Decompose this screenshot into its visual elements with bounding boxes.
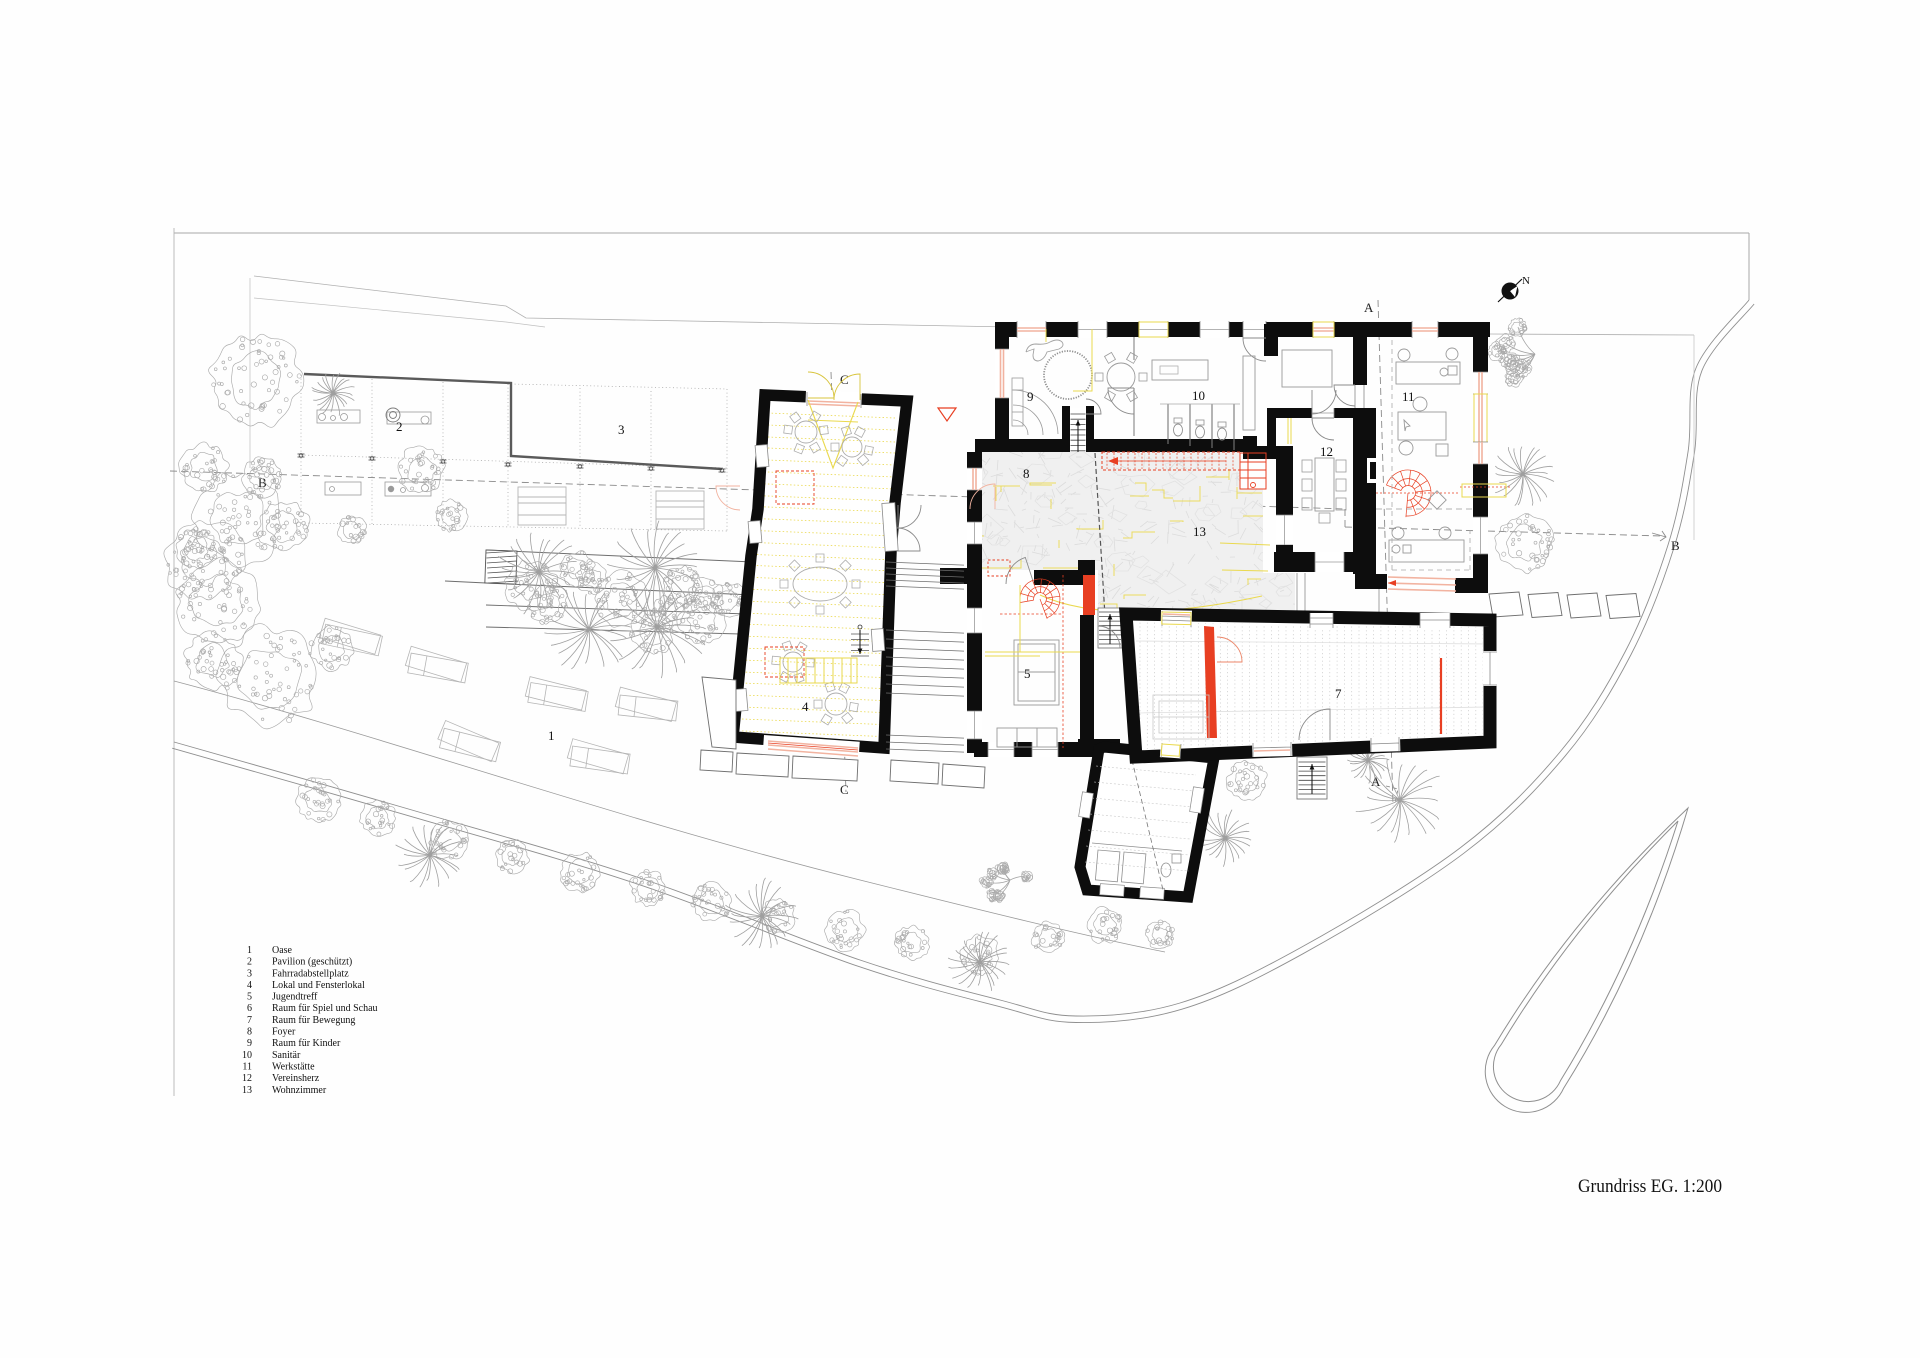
svg-text:Sanitär: Sanitär [272,1050,301,1061]
svg-text:5: 5 [1024,666,1031,681]
svg-text:10: 10 [242,1050,252,1061]
svg-text:1: 1 [548,728,555,743]
svg-text:5: 5 [247,992,252,1003]
svg-text:6: 6 [247,1003,252,1014]
svg-text:12: 12 [1320,444,1333,459]
svg-text:Jugendtreff: Jugendtreff [272,992,318,1003]
svg-text:Pavilion (geschützt): Pavilion (geschützt) [272,957,352,968]
svg-text:10: 10 [1192,388,1205,403]
svg-text:Werkstätte: Werkstätte [272,1062,315,1073]
svg-text:4: 4 [802,699,809,714]
svg-text:Vereinsherz: Vereinsherz [272,1073,320,1084]
svg-text:Oase: Oase [272,945,293,956]
svg-text:Raum für Bewegung: Raum für Bewegung [272,1015,355,1026]
svg-text:Foyer: Foyer [272,1027,296,1038]
svg-text:Lokal und Fensterlokal: Lokal und Fensterlokal [272,980,365,991]
svg-text:7: 7 [1335,686,1342,701]
svg-text:N: N [1522,275,1530,287]
svg-text:Raum für Kinder: Raum für Kinder [272,1038,341,1049]
svg-text:2: 2 [396,419,403,434]
svg-text:2: 2 [247,957,252,968]
svg-text:11: 11 [242,1062,252,1073]
svg-text:Wohnzimmer: Wohnzimmer [272,1085,327,1096]
svg-text:8: 8 [1023,466,1030,481]
svg-text:C: C [840,782,849,797]
svg-text:Raum für Spiel und Schau: Raum für Spiel und Schau [272,1003,378,1014]
svg-text:9: 9 [1027,389,1034,404]
svg-text:Fahrradabstellplatz: Fahrradabstellplatz [272,968,349,979]
svg-text:9: 9 [247,1038,252,1049]
svg-text:Grundriss EG. 1:200: Grundriss EG. 1:200 [1578,1176,1722,1197]
svg-text:3: 3 [618,422,625,437]
svg-text:A: A [1364,300,1374,315]
svg-text:11: 11 [1402,389,1415,404]
svg-text:13: 13 [242,1085,252,1096]
svg-text:B: B [1671,538,1680,553]
svg-text:12: 12 [242,1073,252,1084]
svg-text:8: 8 [247,1027,252,1038]
svg-text:1: 1 [247,945,252,956]
svg-text:7: 7 [247,1015,252,1026]
svg-text:4: 4 [247,980,252,991]
svg-text:3: 3 [247,968,252,979]
svg-text:13: 13 [1193,524,1206,539]
